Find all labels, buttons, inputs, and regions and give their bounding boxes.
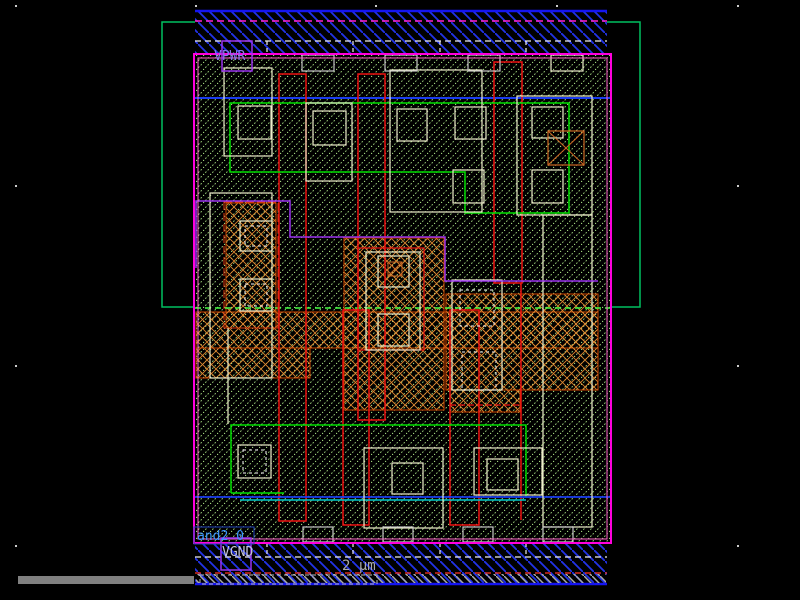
vpwr-label: VPWR xyxy=(214,49,245,64)
cell-name-label: and2_0 xyxy=(197,529,244,544)
grid-dot xyxy=(737,185,739,187)
layout-viewer: VPWRVGNDand2_02 µm xyxy=(0,0,800,600)
diff-center-col xyxy=(344,238,444,410)
grid-dot xyxy=(737,365,739,367)
grid-dot xyxy=(15,545,17,547)
grid-dot xyxy=(375,5,377,7)
layout-shapes: VPWRVGNDand2_02 µm xyxy=(18,10,640,585)
grid-dot xyxy=(195,5,197,7)
grid-dot xyxy=(737,545,739,547)
diff-left-tap xyxy=(226,203,276,328)
scale-label: 2 µm xyxy=(342,558,376,574)
vpwr-rail-hatch xyxy=(195,10,607,55)
grid-dot xyxy=(15,5,17,7)
vgnd-label: VGND xyxy=(222,545,253,560)
grid-dot xyxy=(15,185,17,187)
scale-ruler-bar xyxy=(18,576,194,584)
diff-right-stub xyxy=(450,390,520,412)
grid-dot xyxy=(737,5,739,7)
layout-canvas[interactable]: VPWRVGNDand2_02 µm xyxy=(0,0,800,600)
diff-left-low xyxy=(196,348,310,378)
grid-dot xyxy=(15,365,17,367)
grid-dot xyxy=(556,5,558,7)
